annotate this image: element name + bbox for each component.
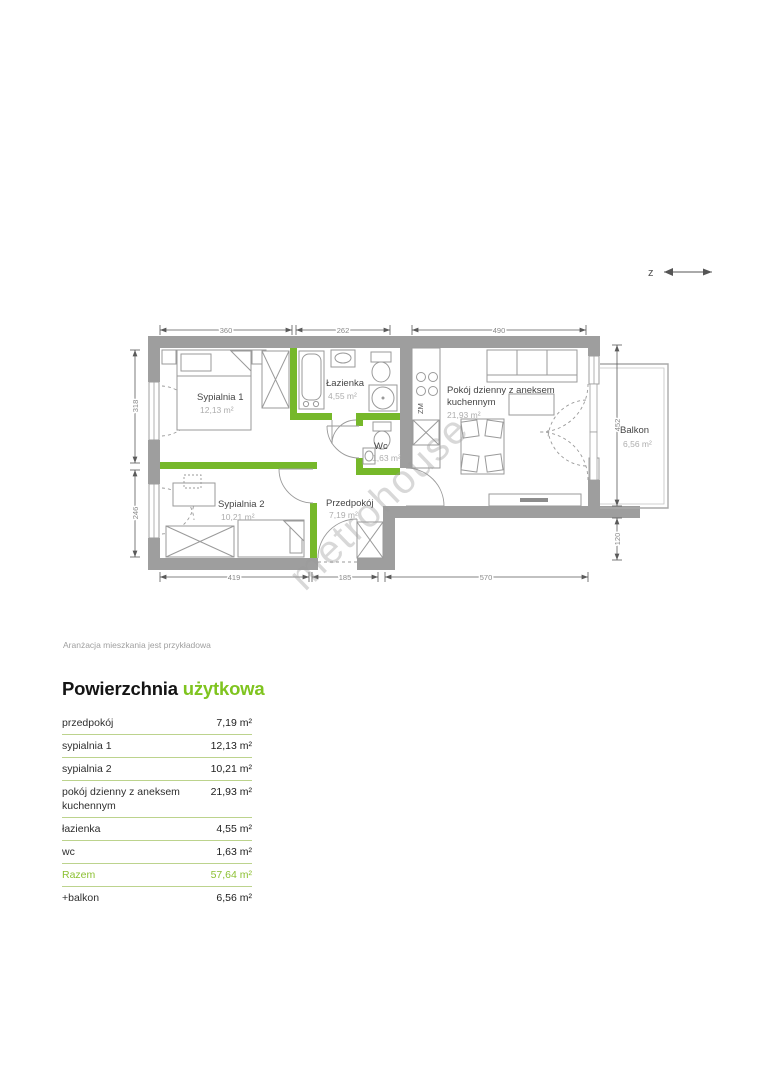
window-icon — [149, 382, 159, 440]
row-label: wc — [62, 846, 75, 859]
room-label-pokoj-1: Pokój dzienny z aneksem — [447, 385, 555, 396]
row-value: 1,63 m² — [216, 846, 252, 858]
row-label: sypialnia 1 — [62, 740, 112, 753]
dim-label: 570 — [480, 573, 493, 582]
dim-label: 246 — [131, 507, 140, 520]
door-icon — [279, 469, 313, 503]
row-label: Razem — [62, 869, 95, 882]
tv-stand-symbol — [489, 494, 581, 506]
wardrobe-symbol — [262, 351, 289, 408]
wardrobe-symbol — [166, 526, 234, 557]
row-value: 12,13 m² — [211, 740, 252, 752]
sofa-symbol — [487, 350, 577, 382]
section-title: Powierzchnia użytkowa — [62, 678, 264, 700]
coffee-table-symbol — [509, 394, 554, 415]
dim-label: 318 — [131, 400, 140, 413]
table-row-total: Razem 57,64 m² — [62, 864, 252, 887]
area-table: przedpokój 7,19 m² sypialnia 1 12,13 m² … — [62, 712, 252, 909]
window-icon — [589, 356, 599, 384]
dim-label: 419 — [228, 573, 241, 582]
row-value: 10,21 m² — [211, 763, 252, 775]
row-label: +balkon — [62, 892, 99, 905]
table-row: sypialnia 2 10,21 m² — [62, 758, 252, 781]
row-label: łazienka — [62, 823, 101, 836]
bathtub-symbol — [299, 351, 324, 409]
floor-plan-page: z — [0, 0, 763, 1080]
row-value: 57,64 m² — [211, 869, 252, 881]
room-area-sypialnia2: 10,21 m² — [221, 512, 255, 522]
dim-label: 120 — [613, 533, 622, 546]
row-value: 6,56 m² — [216, 892, 252, 904]
table-row: pokój dzienny z aneksem kuchennym 21,93 … — [62, 781, 252, 817]
dim-label: 262 — [337, 326, 350, 335]
table-row: +balkon 6,56 m² — [62, 887, 252, 909]
north-arrow-icon: z — [648, 267, 712, 279]
table-row: łazienka 4,55 m² — [62, 818, 252, 841]
dim-label: 360 — [220, 326, 233, 335]
dim-label: 490 — [493, 326, 506, 335]
window-icon — [149, 484, 159, 538]
room-label-pokoj-2: kuchennym — [447, 397, 496, 408]
row-value: 4,55 m² — [216, 823, 252, 835]
room-area-lazienka: 4,55 m² — [328, 391, 357, 401]
balcony-outline — [600, 364, 668, 508]
dishwasher-label: ZM — [416, 403, 425, 414]
floor-plan: z — [0, 0, 763, 640]
north-label: z — [648, 267, 654, 279]
row-value: 7,19 m² — [216, 717, 252, 729]
dim-label: 185 — [339, 573, 352, 582]
bed-symbol — [238, 520, 304, 557]
bed-symbol — [162, 350, 266, 430]
room-label-lazienka: Łazienka — [326, 378, 365, 389]
plan-caption: Aranżacja mieszkania jest przykładowa — [63, 640, 211, 650]
room-label-sypialnia1: Sypialnia 1 — [197, 392, 243, 403]
room-area-sypialnia1: 12,13 m² — [200, 405, 234, 415]
row-value: 21,93 m² — [211, 786, 252, 798]
room-label-sypialnia2: Sypialnia 2 — [218, 499, 264, 510]
table-row: wc 1,63 m² — [62, 841, 252, 864]
section-title-black: Powierzchnia — [62, 678, 178, 699]
row-label: przedpokój — [62, 717, 113, 730]
row-label: pokój dzienny z aneksem kuchennym — [62, 786, 194, 812]
room-label-wc: Wc — [374, 441, 388, 452]
room-area-balkon: 6,56 m² — [623, 439, 652, 449]
section-title-green: użytkowa — [183, 678, 265, 699]
table-row: sypialnia 1 12,13 m² — [62, 735, 252, 758]
shower-symbol — [369, 385, 397, 411]
toilet-symbol — [371, 352, 391, 382]
room-label-balkon: Balkon — [620, 425, 649, 436]
row-label: sypialnia 2 — [62, 763, 112, 776]
door-icon — [332, 420, 356, 444]
table-row: przedpokój 7,19 m² — [62, 712, 252, 735]
sink-symbol — [331, 350, 355, 367]
desk-symbol — [173, 475, 215, 506]
